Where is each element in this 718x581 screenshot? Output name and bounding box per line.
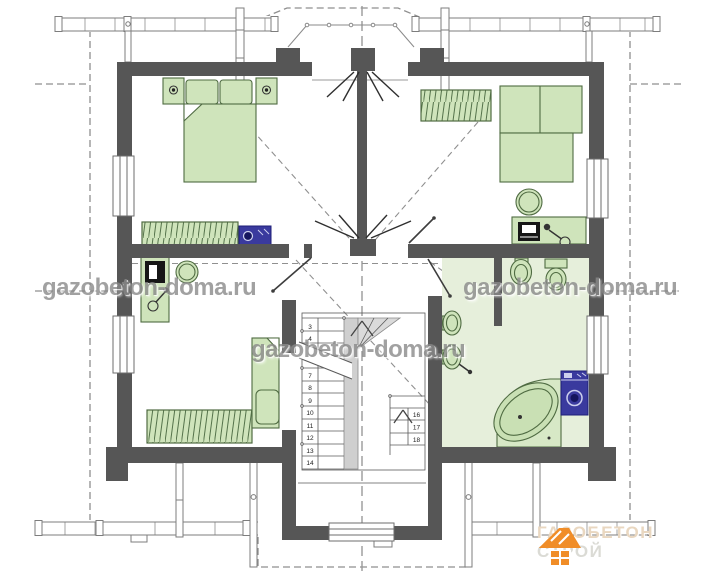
chimney	[351, 48, 375, 71]
floor-plan-page: 3 4 7 8 9 10 11 12 13 14 16 17 18	[0, 0, 718, 581]
stair-number: 7	[308, 373, 312, 380]
window	[113, 156, 134, 216]
stair-number: 18	[413, 437, 421, 444]
sofa-bed-extension	[500, 133, 573, 182]
window	[113, 316, 134, 373]
stair-number: 9	[308, 398, 312, 405]
stair-number: 13	[306, 448, 314, 455]
stair-number: 10	[306, 410, 314, 417]
watermark: gazobeton-doma.ru	[463, 274, 677, 302]
window	[329, 523, 394, 541]
round-stool	[516, 189, 542, 215]
stair-number: 12	[306, 435, 314, 442]
stair-number: 3	[308, 324, 312, 331]
dresser-commode	[239, 226, 271, 246]
door-leaf	[409, 216, 436, 243]
chimney-flue	[350, 239, 376, 256]
desk-lamp	[544, 224, 550, 230]
watermark: gazobeton-doma.ru	[251, 336, 465, 364]
bed-pillow	[220, 80, 252, 104]
toilet-cistern	[545, 259, 567, 268]
corner-sofa	[500, 86, 582, 133]
window	[587, 316, 608, 374]
brand-logo: ГАЗОБЕТОН СТРОЙ	[537, 523, 654, 561]
watermark: gazobeton-doma.ru	[42, 274, 256, 302]
stair-number: 8	[308, 385, 312, 392]
bed-pillow	[186, 80, 218, 104]
corner-pier	[588, 447, 616, 481]
corner-pier	[106, 447, 128, 481]
bedroom-topright-furniture	[421, 86, 586, 247]
stair-number: 11	[307, 423, 314, 430]
stair-number: 14	[306, 460, 314, 467]
terrace-railing-top	[53, 16, 662, 32]
stair-number: 17	[413, 425, 421, 432]
partition-wall	[357, 70, 367, 252]
dormer-step-left	[276, 48, 300, 76]
stair-number: 16	[413, 412, 421, 419]
washing-machine	[561, 371, 588, 415]
bedroom-topleft-furniture	[142, 78, 277, 249]
window	[587, 159, 608, 218]
double-bed	[184, 104, 256, 182]
logo-house-icon	[537, 523, 583, 569]
